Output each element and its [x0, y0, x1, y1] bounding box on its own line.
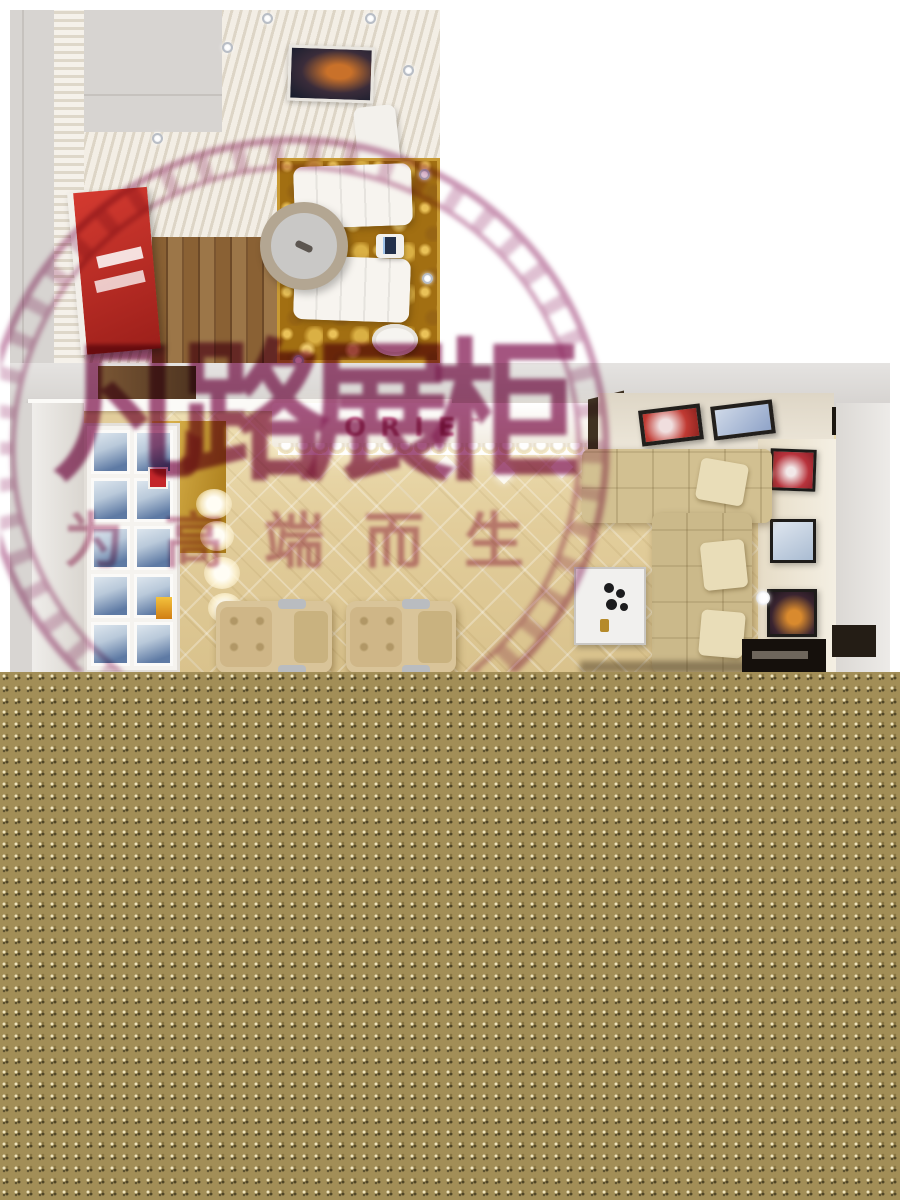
render-top-room: [10, 10, 440, 363]
ceiling-light: [419, 169, 430, 180]
pedicure-basin: [372, 324, 418, 356]
display-print: [91, 574, 130, 618]
gold-bottle: [600, 619, 609, 632]
ceiling-light: [293, 355, 304, 363]
artwork-text-bar: [94, 270, 145, 293]
display-print: [134, 622, 173, 666]
display-print: [134, 526, 173, 570]
chair-back-cushion: [350, 607, 402, 667]
wall-tv-picture: [287, 45, 375, 104]
ceiling-light: [152, 133, 163, 144]
artwork-text-bar: [96, 246, 144, 268]
sofa-pillow: [698, 609, 746, 659]
floor-light-glow: [196, 489, 232, 519]
bottle: [616, 589, 625, 598]
salon-sign: ORIE™: [344, 413, 481, 443]
ceiling-light: [222, 42, 233, 53]
quilted-wall-panel: ORIE™: [272, 403, 616, 447]
wall-molding: [22, 10, 24, 363]
ceiling-frame-red: [638, 403, 704, 446]
red-display-box: [148, 467, 168, 489]
bottle: [620, 603, 628, 611]
floor-light-glow: [204, 557, 240, 589]
massage-chair: [216, 601, 332, 673]
wall-picture-red: [769, 448, 816, 492]
chair-armrest: [402, 599, 430, 609]
wall-picture-blue: [770, 519, 816, 563]
display-cabinet: [84, 423, 180, 673]
red-artwork: [67, 187, 161, 355]
tablet-side-table: [376, 234, 404, 258]
crystal-scallop-trim: [278, 443, 610, 455]
ceiling-light: [422, 273, 433, 284]
round-side-table: [260, 202, 348, 290]
fireplace-recess: [742, 639, 826, 673]
ceiling-light: [365, 13, 376, 24]
dotted-texture-block: [0, 672, 900, 1200]
wall-left-column: [10, 10, 54, 363]
sign-mark: ™: [470, 416, 481, 429]
render-salon-band: ORIE™: [10, 363, 890, 673]
wall-spot-light: [756, 591, 770, 605]
tablet-device: [383, 237, 396, 254]
display-print: [91, 526, 130, 570]
chair-footrest: [294, 611, 328, 663]
floor-light-glow: [200, 521, 234, 551]
ceiling-light: [403, 65, 414, 76]
wood-floor: [152, 237, 277, 363]
bottle: [606, 599, 617, 610]
gold-display-item: [156, 597, 172, 619]
scene-canvas: ORIE™: [0, 0, 900, 1200]
chair-armrest: [278, 599, 306, 609]
display-print: [91, 478, 130, 522]
fireplace-glow: [752, 651, 808, 659]
table-centerpiece: [294, 240, 313, 254]
display-print: [91, 430, 130, 474]
sofa-pillow: [695, 457, 750, 507]
chair-back-cushion: [220, 607, 272, 667]
left-wall: [32, 403, 84, 673]
coffee-table: [574, 567, 646, 645]
ceiling-light: [262, 13, 273, 24]
sofa-pillow: [700, 539, 749, 591]
display-print: [91, 622, 130, 666]
wood-shelf-top: [98, 366, 196, 399]
chair-footrest: [418, 611, 452, 663]
wall-picture-dark: [767, 589, 817, 637]
bottle: [604, 583, 614, 593]
left-outer-wall: [10, 403, 32, 673]
dark-recess-bottom: [832, 625, 876, 657]
massage-chair: [346, 601, 456, 673]
